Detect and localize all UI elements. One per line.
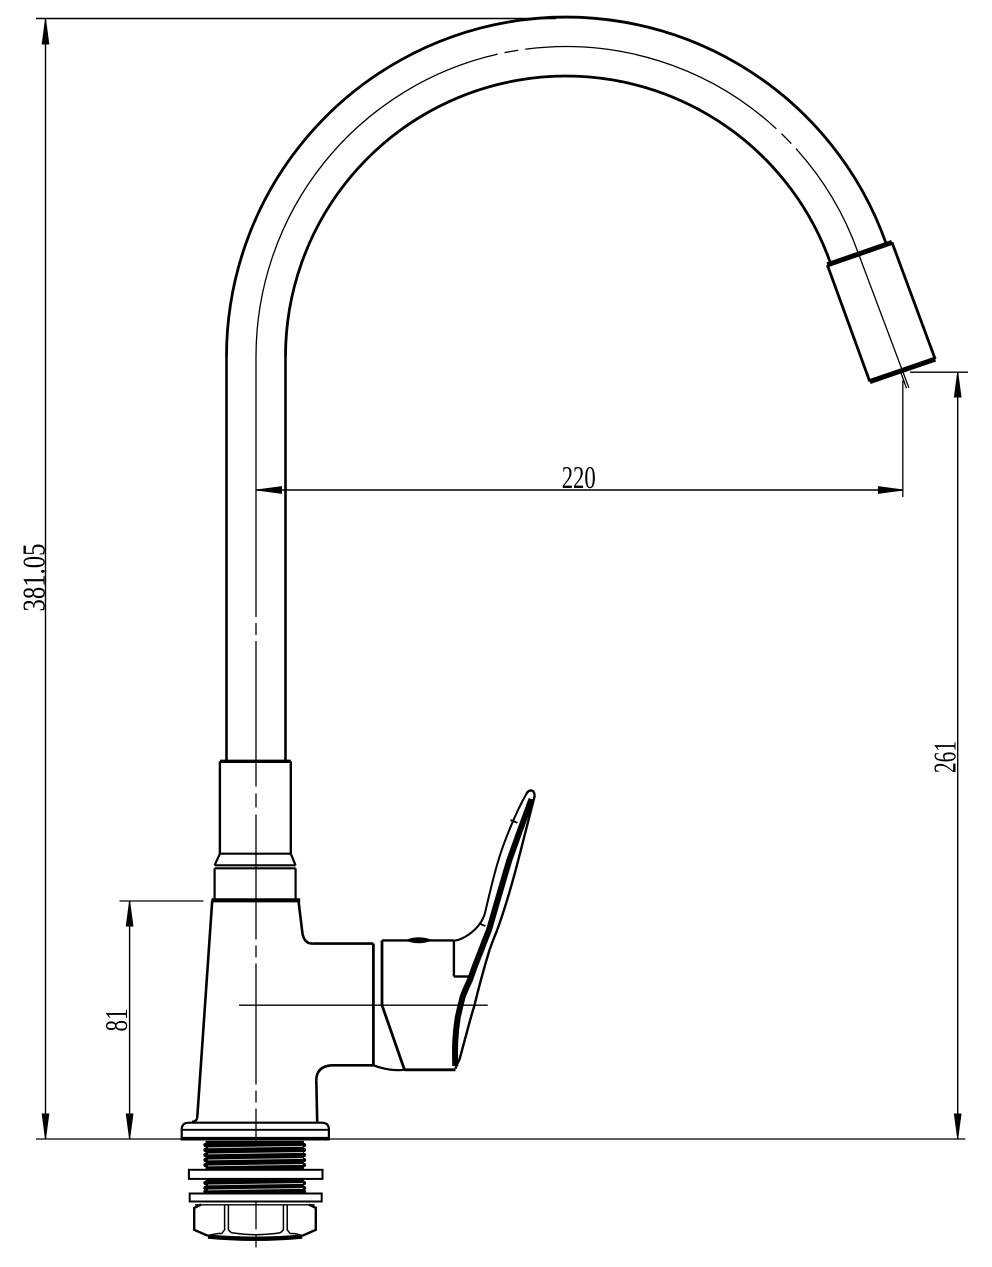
svg-text:81: 81 [99,1009,134,1032]
svg-text:261: 261 [928,741,963,773]
svg-text:381.05: 381.05 [16,544,51,612]
svg-text:220: 220 [562,460,596,495]
